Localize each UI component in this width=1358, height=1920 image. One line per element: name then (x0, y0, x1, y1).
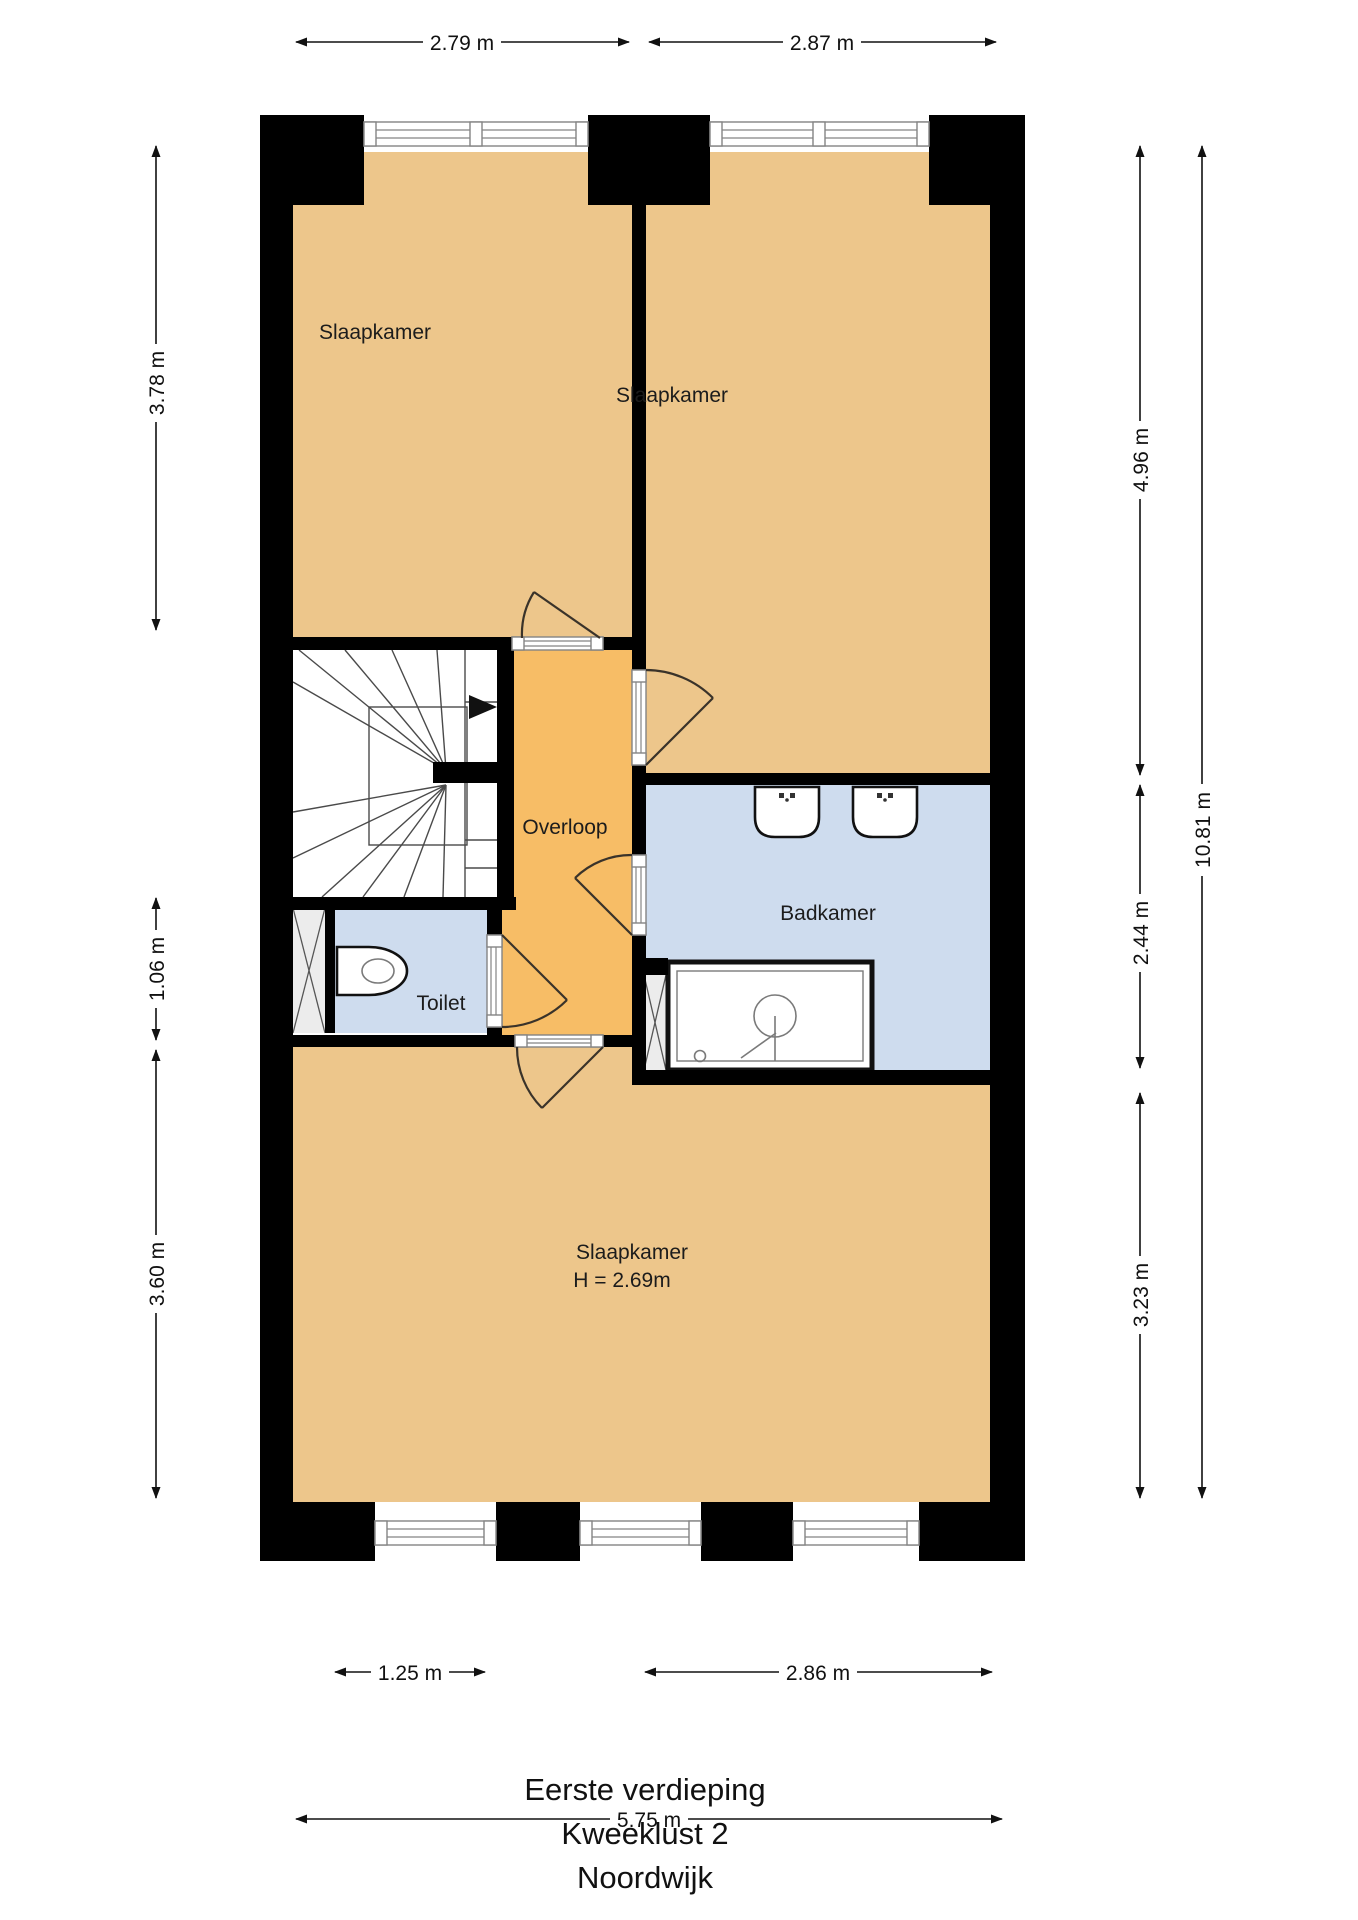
shower-icon (668, 962, 872, 1070)
dim-right-overall: 10.81 m (1192, 792, 1215, 868)
dim-left-1: 3.78 m (146, 351, 169, 415)
window-top-right (710, 122, 929, 146)
dim-right-1: 4.96 m (1130, 428, 1153, 492)
doorway-bedroom-top-left (512, 637, 603, 650)
dim-bottom-2: 2.86 m (786, 1662, 850, 1685)
duct-left (293, 908, 325, 1033)
room-bedroom-top-left (293, 150, 632, 637)
wall-exterior-left (260, 115, 293, 1561)
wall-pier (588, 115, 710, 205)
window-bottom-1 (375, 1521, 496, 1545)
doorway-toilet (487, 935, 502, 1027)
floorplan-page: Slaapkamer Slaapkamer Overloop Badkamer … (0, 0, 1358, 1920)
title-city: Noordwijk (577, 1860, 714, 1895)
label-bedroom-top-left: Slaapkamer (319, 321, 431, 344)
dim-top-1: 2.79 m (430, 32, 494, 55)
wall-exterior-right (990, 115, 1025, 1561)
duct-bathroom (644, 975, 666, 1070)
dim-top-2: 2.87 m (790, 32, 854, 55)
toilet-fixture-icon (337, 947, 407, 995)
title-block: Eerste verdieping Kweeklust 2 Noordwijk (524, 1772, 765, 1895)
label-landing: Overloop (522, 816, 607, 839)
dim-bottom-1: 1.25 m (378, 1662, 442, 1685)
doorway-bedroom-bottom (515, 1035, 603, 1047)
floorplan-drawing: Slaapkamer Slaapkamer Overloop Badkamer … (0, 0, 1358, 1920)
label-bedroom-top-right: Slaapkamer (616, 384, 728, 407)
window-bottom-3 (793, 1521, 919, 1545)
doorway-bathroom (632, 855, 646, 935)
label-bathroom: Badkamer (780, 902, 876, 925)
dim-right-2: 2.44 m (1130, 901, 1153, 965)
doorway-bedroom-top-right (632, 670, 646, 765)
dim-left-3: 3.60 m (146, 1242, 169, 1306)
stair-newel (433, 762, 497, 783)
bathroom-sink-icon (853, 787, 917, 837)
label-bedroom-bottom-height: H = 2.69m (573, 1269, 670, 1292)
dim-right-3: 3.23 m (1130, 1263, 1153, 1327)
room-bedroom-top-right (646, 150, 990, 773)
label-toilet: Toilet (416, 992, 465, 1015)
title-address: Kweeklust 2 (561, 1816, 728, 1851)
room-landing (502, 650, 632, 1035)
title-floor: Eerste verdieping (524, 1772, 765, 1807)
bathroom-sink-icon (755, 787, 819, 837)
dim-left-2: 1.06 m (146, 937, 169, 1001)
window-top-left (364, 122, 588, 146)
label-bedroom-bottom: Slaapkamer (576, 1241, 688, 1264)
window-bottom-2 (580, 1521, 701, 1545)
